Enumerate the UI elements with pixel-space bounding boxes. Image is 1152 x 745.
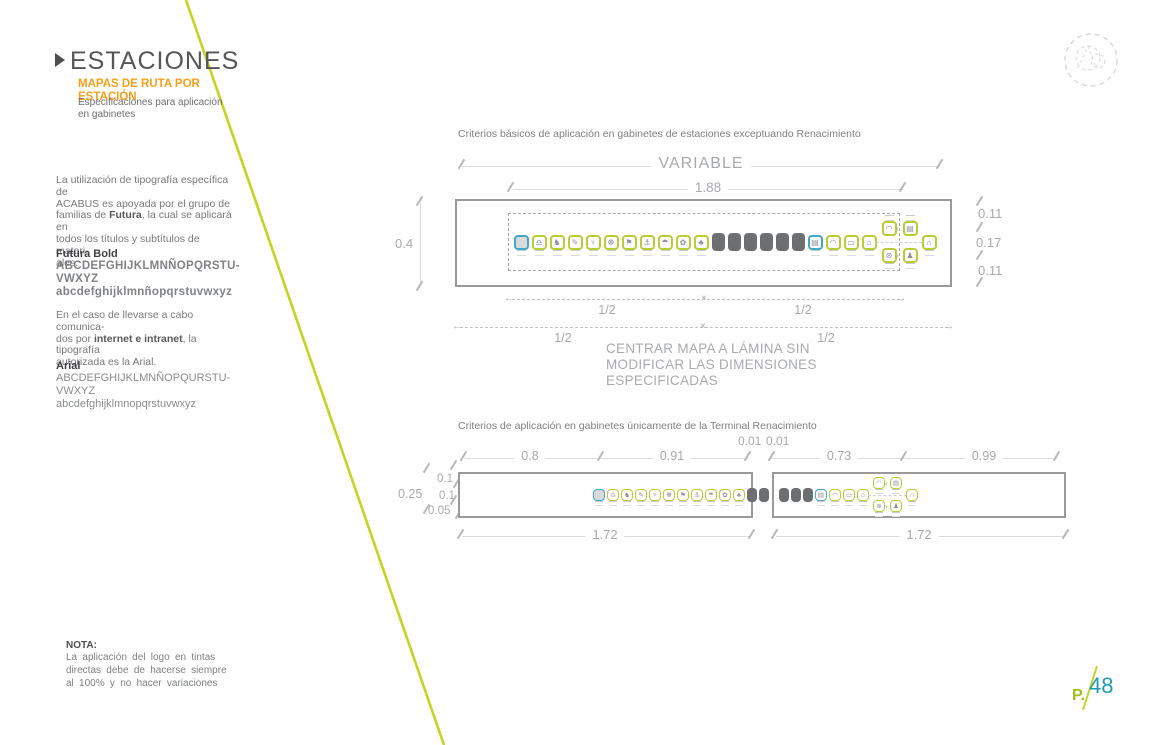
station-name-label <box>625 250 634 256</box>
intermediate-station-icon <box>776 233 789 251</box>
center-mark-icon: × <box>701 294 707 304</box>
height-dim-line <box>420 203 421 286</box>
station-name-label <box>847 250 856 256</box>
leaf-station-icon: ✿ <box>719 489 731 501</box>
dim-tick <box>1053 451 1061 461</box>
scales-station-icon: ♎ <box>532 235 547 250</box>
zocalo-terminal-icon <box>593 489 605 501</box>
station-name-label <box>831 501 839 506</box>
intermediate-station-icon <box>712 233 725 251</box>
arial-heading: Arial <box>56 360 80 372</box>
arial-uppercase-2: VWXYZ <box>56 385 236 398</box>
car-station-icon: ◠ <box>829 489 841 501</box>
station-name-label <box>623 501 631 506</box>
flag-station-icon: ⚑ <box>677 489 689 501</box>
diagram2-caption: Criterios de aplicación en gabinetes úni… <box>458 420 817 432</box>
tree-branch-icon: ♟ <box>903 248 918 263</box>
intermediate-station-icon <box>792 233 805 251</box>
anchor-station-icon: ⚓ <box>640 235 655 250</box>
renacimiento-left-icon-strip: ♎♞✎♆☸⚑⚓☂✿♣ <box>592 472 770 518</box>
right-dim-3: 0.11 <box>978 263 1002 278</box>
station-name-label <box>595 501 603 506</box>
station-name-label <box>661 250 670 256</box>
station-name-label <box>735 501 743 506</box>
half-label-1: 1/2 <box>591 303 622 317</box>
manual-page: ESTACIONES MAPAS DE RUTA POR ESTACIÓN Es… <box>0 0 1152 745</box>
dim-tick <box>423 463 431 473</box>
bottom-dim-left: 1.72 <box>585 527 624 542</box>
dim-tick <box>416 281 424 291</box>
top-dim-0.99: 0.99 <box>965 449 1003 463</box>
dim-tick <box>976 222 984 232</box>
station-name-label <box>892 489 900 494</box>
station-name-label <box>845 501 853 506</box>
bottom-dim-right: 1.72 <box>899 527 938 542</box>
station-name-label <box>906 215 915 221</box>
screen-station-icon: ▭ <box>844 235 859 250</box>
station-name-label <box>829 250 838 256</box>
owl-station-icon: ♞ <box>621 489 633 501</box>
wheel-branch-icon: ⊛ <box>882 248 897 263</box>
brand-watermark-logo <box>1058 28 1124 94</box>
right-dim-2: 0.17 <box>976 235 1001 250</box>
wheel-branch-icon: ⊛ <box>873 500 885 512</box>
dim-tick <box>597 451 605 461</box>
pen-station-icon: ✎ <box>635 489 647 501</box>
small-dim-0.01-a: 0.01 <box>738 434 761 448</box>
dim-tick <box>507 182 515 192</box>
dim-tick <box>460 451 468 461</box>
intermediate-station-icon <box>791 488 801 502</box>
center-map-note: CENTRAR MAPA A LÁMINA SINMODIFICAR LAS D… <box>606 341 817 389</box>
page-title: ESTACIONES <box>70 47 239 76</box>
station-name-label <box>535 250 544 256</box>
left-inner-dim-3: 0.05 <box>428 505 450 517</box>
station-name-label <box>643 250 652 256</box>
top-dim-0.91: 0.91 <box>653 449 691 463</box>
return-loop-icon: ∩ <box>922 235 937 250</box>
station-name-label <box>679 250 688 256</box>
flag-station-icon: ⚑ <box>622 235 637 250</box>
branch-arrow-icon: ‹ <box>896 225 899 233</box>
futura-uppercase-1: ABCDEFGHIJKLMNÑOPQRSTU- <box>56 260 236 273</box>
height-dim-label: 0.4 <box>395 236 413 251</box>
top-dim-line-left <box>464 458 748 459</box>
page-description: Especificaciones para aplicación en gabi… <box>78 97 223 121</box>
branch-station-cluster: ◠▤⊛♟‹› <box>872 473 903 517</box>
left-inner-dim-1: 0.1 <box>437 473 453 485</box>
bus-branch-icon: ◠ <box>882 221 897 236</box>
description-line-1: Especificaciones para aplicación <box>78 97 223 109</box>
hook-station-icon: ☂ <box>658 235 673 250</box>
station-name-label <box>817 501 825 506</box>
hook-station-icon: ☂ <box>705 489 717 501</box>
station-name-label <box>908 501 916 506</box>
dim-tick <box>458 159 466 169</box>
subtitle-line-1: MAPAS DE RUTA POR <box>78 78 200 91</box>
station-name-label <box>679 501 687 506</box>
title-bullet-icon <box>55 53 65 67</box>
boat-station-icon: ♆ <box>649 489 661 501</box>
renacimiento-right-icon-strip: ▤◠▭⌂◠▤⊛♟‹›∩ <box>778 472 919 518</box>
branch-arrow-icon: › <box>885 503 888 511</box>
building-branch-icon: ▤ <box>903 221 918 236</box>
dim-tick <box>936 159 944 169</box>
suitcase-station-icon: ⌂ <box>862 235 877 250</box>
station-name-label <box>517 250 526 256</box>
arial-specimen: ABCDEFGHIJKLMNÑOPQURSTU- VWXYZ abcdefghi… <box>56 372 236 411</box>
leaf-station-icon: ✿ <box>676 235 691 250</box>
dim-tick <box>976 277 984 287</box>
station-name-label <box>906 263 915 269</box>
station-name-label <box>925 250 934 256</box>
intermediate-station-icon <box>779 488 789 502</box>
station-name-label <box>721 501 729 506</box>
dim-tick <box>744 451 752 461</box>
dim-tick <box>1062 529 1070 539</box>
arial-uppercase-1: ABCDEFGHIJKLMNÑOPQURSTU- <box>56 372 236 385</box>
nota-body: La aplicación del logo en tintasdirectas… <box>66 651 236 690</box>
dim-tick <box>976 250 984 260</box>
top-dim-line-right <box>770 458 1057 459</box>
right-dim-1: 0.11 <box>978 206 1002 221</box>
station-name-label <box>875 512 883 517</box>
futura-specimen: ABCDEFGHIJKLMNÑOPQRSTU- VWXYZ abcdefghij… <box>56 260 236 299</box>
dim-tick <box>768 451 776 461</box>
station-name-label <box>811 250 820 256</box>
station-name-label <box>651 501 659 506</box>
half-label-2: 1/2 <box>787 303 818 317</box>
dim-tick <box>457 529 465 539</box>
dim-tick <box>450 460 458 470</box>
nota-heading: NOTA: <box>66 640 97 651</box>
diagram1-caption: Criterios básicos de aplicación en gabin… <box>458 128 861 140</box>
dim-tick <box>899 182 907 192</box>
intermediate-station-icon <box>803 488 813 502</box>
arrow-right-icon: → <box>944 322 954 332</box>
renacimiento-terminal-icon: ▤ <box>815 489 827 501</box>
intermediate-station-icon <box>759 488 769 502</box>
dim-tick <box>900 451 908 461</box>
station-name-label <box>865 250 874 256</box>
futura-heading: Futura Bold <box>56 248 118 260</box>
station-name-label <box>607 250 616 256</box>
boat-station-icon: ♆ <box>586 235 601 250</box>
station-name-label <box>885 215 894 221</box>
station-name-label <box>589 250 598 256</box>
screen-station-icon: ▭ <box>843 489 855 501</box>
station-name-label <box>885 263 894 269</box>
web-typography-paragraph: En el caso de llevarse a cabo comunica-d… <box>56 310 234 369</box>
station-name-label <box>859 501 867 506</box>
station-name-label <box>637 501 645 506</box>
branch-arrow-icon: › <box>896 252 899 260</box>
renacimiento-terminal-icon: ▤ <box>808 235 823 250</box>
page-prefix: P. <box>1072 687 1085 705</box>
left-outer-dim: 0.25 <box>398 487 422 501</box>
tree-station-icon: ♣ <box>694 235 709 250</box>
scales-station-icon: ♎ <box>607 489 619 501</box>
description-line-2: en gabinetes <box>78 109 223 121</box>
anchor-station-icon: ⚓ <box>691 489 703 501</box>
tree-station-icon: ♣ <box>733 489 745 501</box>
owl-station-icon: ♞ <box>550 235 565 250</box>
pen-station-icon: ✎ <box>568 235 583 250</box>
branch-station-cluster: ◠▤⊛♟‹› <box>880 213 918 271</box>
intermediate-station-icon <box>760 233 773 251</box>
windmill-station-icon: ☸ <box>663 489 675 501</box>
car-station-icon: ◠ <box>826 235 841 250</box>
station-name-label <box>707 501 715 506</box>
arrow-left-icon: ← <box>504 294 514 304</box>
intermediate-station-icon <box>728 233 741 251</box>
branch-arrow-icon: ‹ <box>885 480 888 488</box>
station-name-label <box>571 250 580 256</box>
windmill-station-icon: ☸ <box>604 235 619 250</box>
arial-lowercase: abcdefghijklmnopqrstuvwxyz <box>56 398 236 411</box>
futura-lowercase: abcdefghijklmnñopqrstuvwxyz <box>56 286 236 299</box>
top-dim-0.8: 0.8 <box>514 449 545 463</box>
arrow-left-icon: ← <box>452 322 462 332</box>
station-name-label <box>665 501 673 506</box>
return-loop-icon: ∩ <box>906 489 918 501</box>
dim-tick <box>748 529 756 539</box>
station-name-label <box>553 250 562 256</box>
station-name-label <box>693 501 701 506</box>
top-dim-0.73: 0.73 <box>820 449 858 463</box>
station-name-label <box>892 512 900 517</box>
station-name-label <box>697 250 706 256</box>
dim-tick <box>976 196 984 206</box>
intermediate-station-icon <box>744 233 757 251</box>
small-dim-0.01-b: 0.01 <box>766 434 789 448</box>
station-name-label <box>609 501 617 506</box>
route-map-icon-strip: ♎♞✎♆☸⚑⚓☂✿♣▤◠▭⌂◠▤⊛♟‹›∩ <box>512 213 938 271</box>
zocalo-terminal-icon <box>514 235 529 250</box>
tree-branch-icon: ♟ <box>890 500 902 512</box>
bus-branch-icon: ◠ <box>873 477 885 489</box>
page-number: 48 <box>1089 673 1113 699</box>
width-dim-label: 1.88 <box>688 180 728 195</box>
arrow-right-icon: → <box>896 294 906 304</box>
variable-dim-label: VARIABLE <box>651 155 750 173</box>
building-branch-icon: ▤ <box>890 477 902 489</box>
futura-uppercase-2: VWXYZ <box>56 273 236 286</box>
station-name-label <box>875 489 883 494</box>
dim-tick <box>771 529 779 539</box>
center-mark-icon: × <box>700 322 706 332</box>
intermediate-station-icon <box>747 488 757 502</box>
half-label-3: 1/2 <box>547 331 578 345</box>
